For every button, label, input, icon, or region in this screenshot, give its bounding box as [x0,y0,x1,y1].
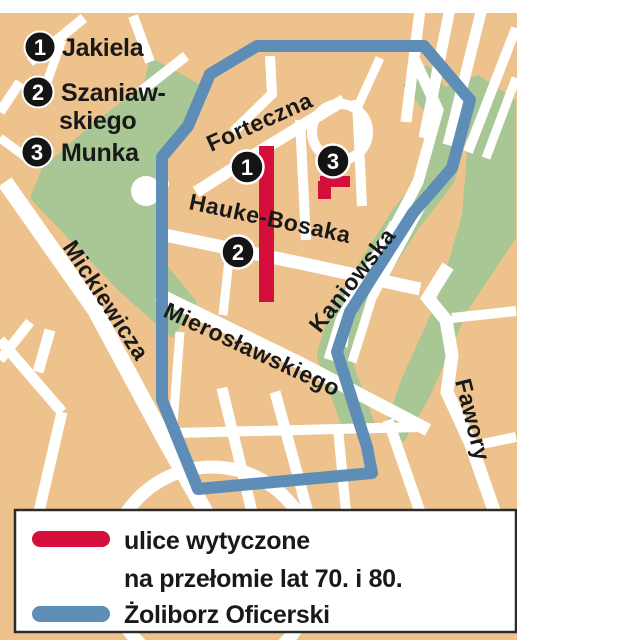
road [0,0,517,13]
legend-label: ulice wytyczone [124,527,310,555]
key-marker-number: 3 [31,140,43,165]
key-marker-number: 2 [32,80,44,105]
legend-box: ulice wytyczone na przełomie lat 70. i 8… [15,510,516,632]
key-label: Szaniaw- [61,79,166,107]
legend-label: na przełomie lat 70. i 80. [124,565,402,593]
map-marker-1: 1 [231,151,264,184]
key-label: Jakiela [62,34,145,62]
key-item-3: 3 Munka [22,137,141,168]
legend-label: Żoliborz Oficerski [124,601,330,629]
marker-number: 1 [241,155,253,180]
new-street-segment-3 [318,181,331,199]
road [175,427,420,433]
key-marker-number: 1 [34,35,46,60]
key-item-1: 1 Jakiela [25,32,145,63]
key-label: skiego [59,107,136,135]
marker-number: 3 [327,149,339,174]
map-marker-2: 2 [222,236,255,269]
map-marker-3: 3 [317,145,350,178]
road [357,100,362,206]
map-figure: Forteczna Hauke-Bosaka Mierosławskiego M… [0,0,638,640]
marker-number: 2 [232,240,244,265]
key-label: Munka [61,139,140,167]
map-canvas: Forteczna Hauke-Bosaka Mierosławskiego M… [0,0,517,640]
road [452,311,516,318]
